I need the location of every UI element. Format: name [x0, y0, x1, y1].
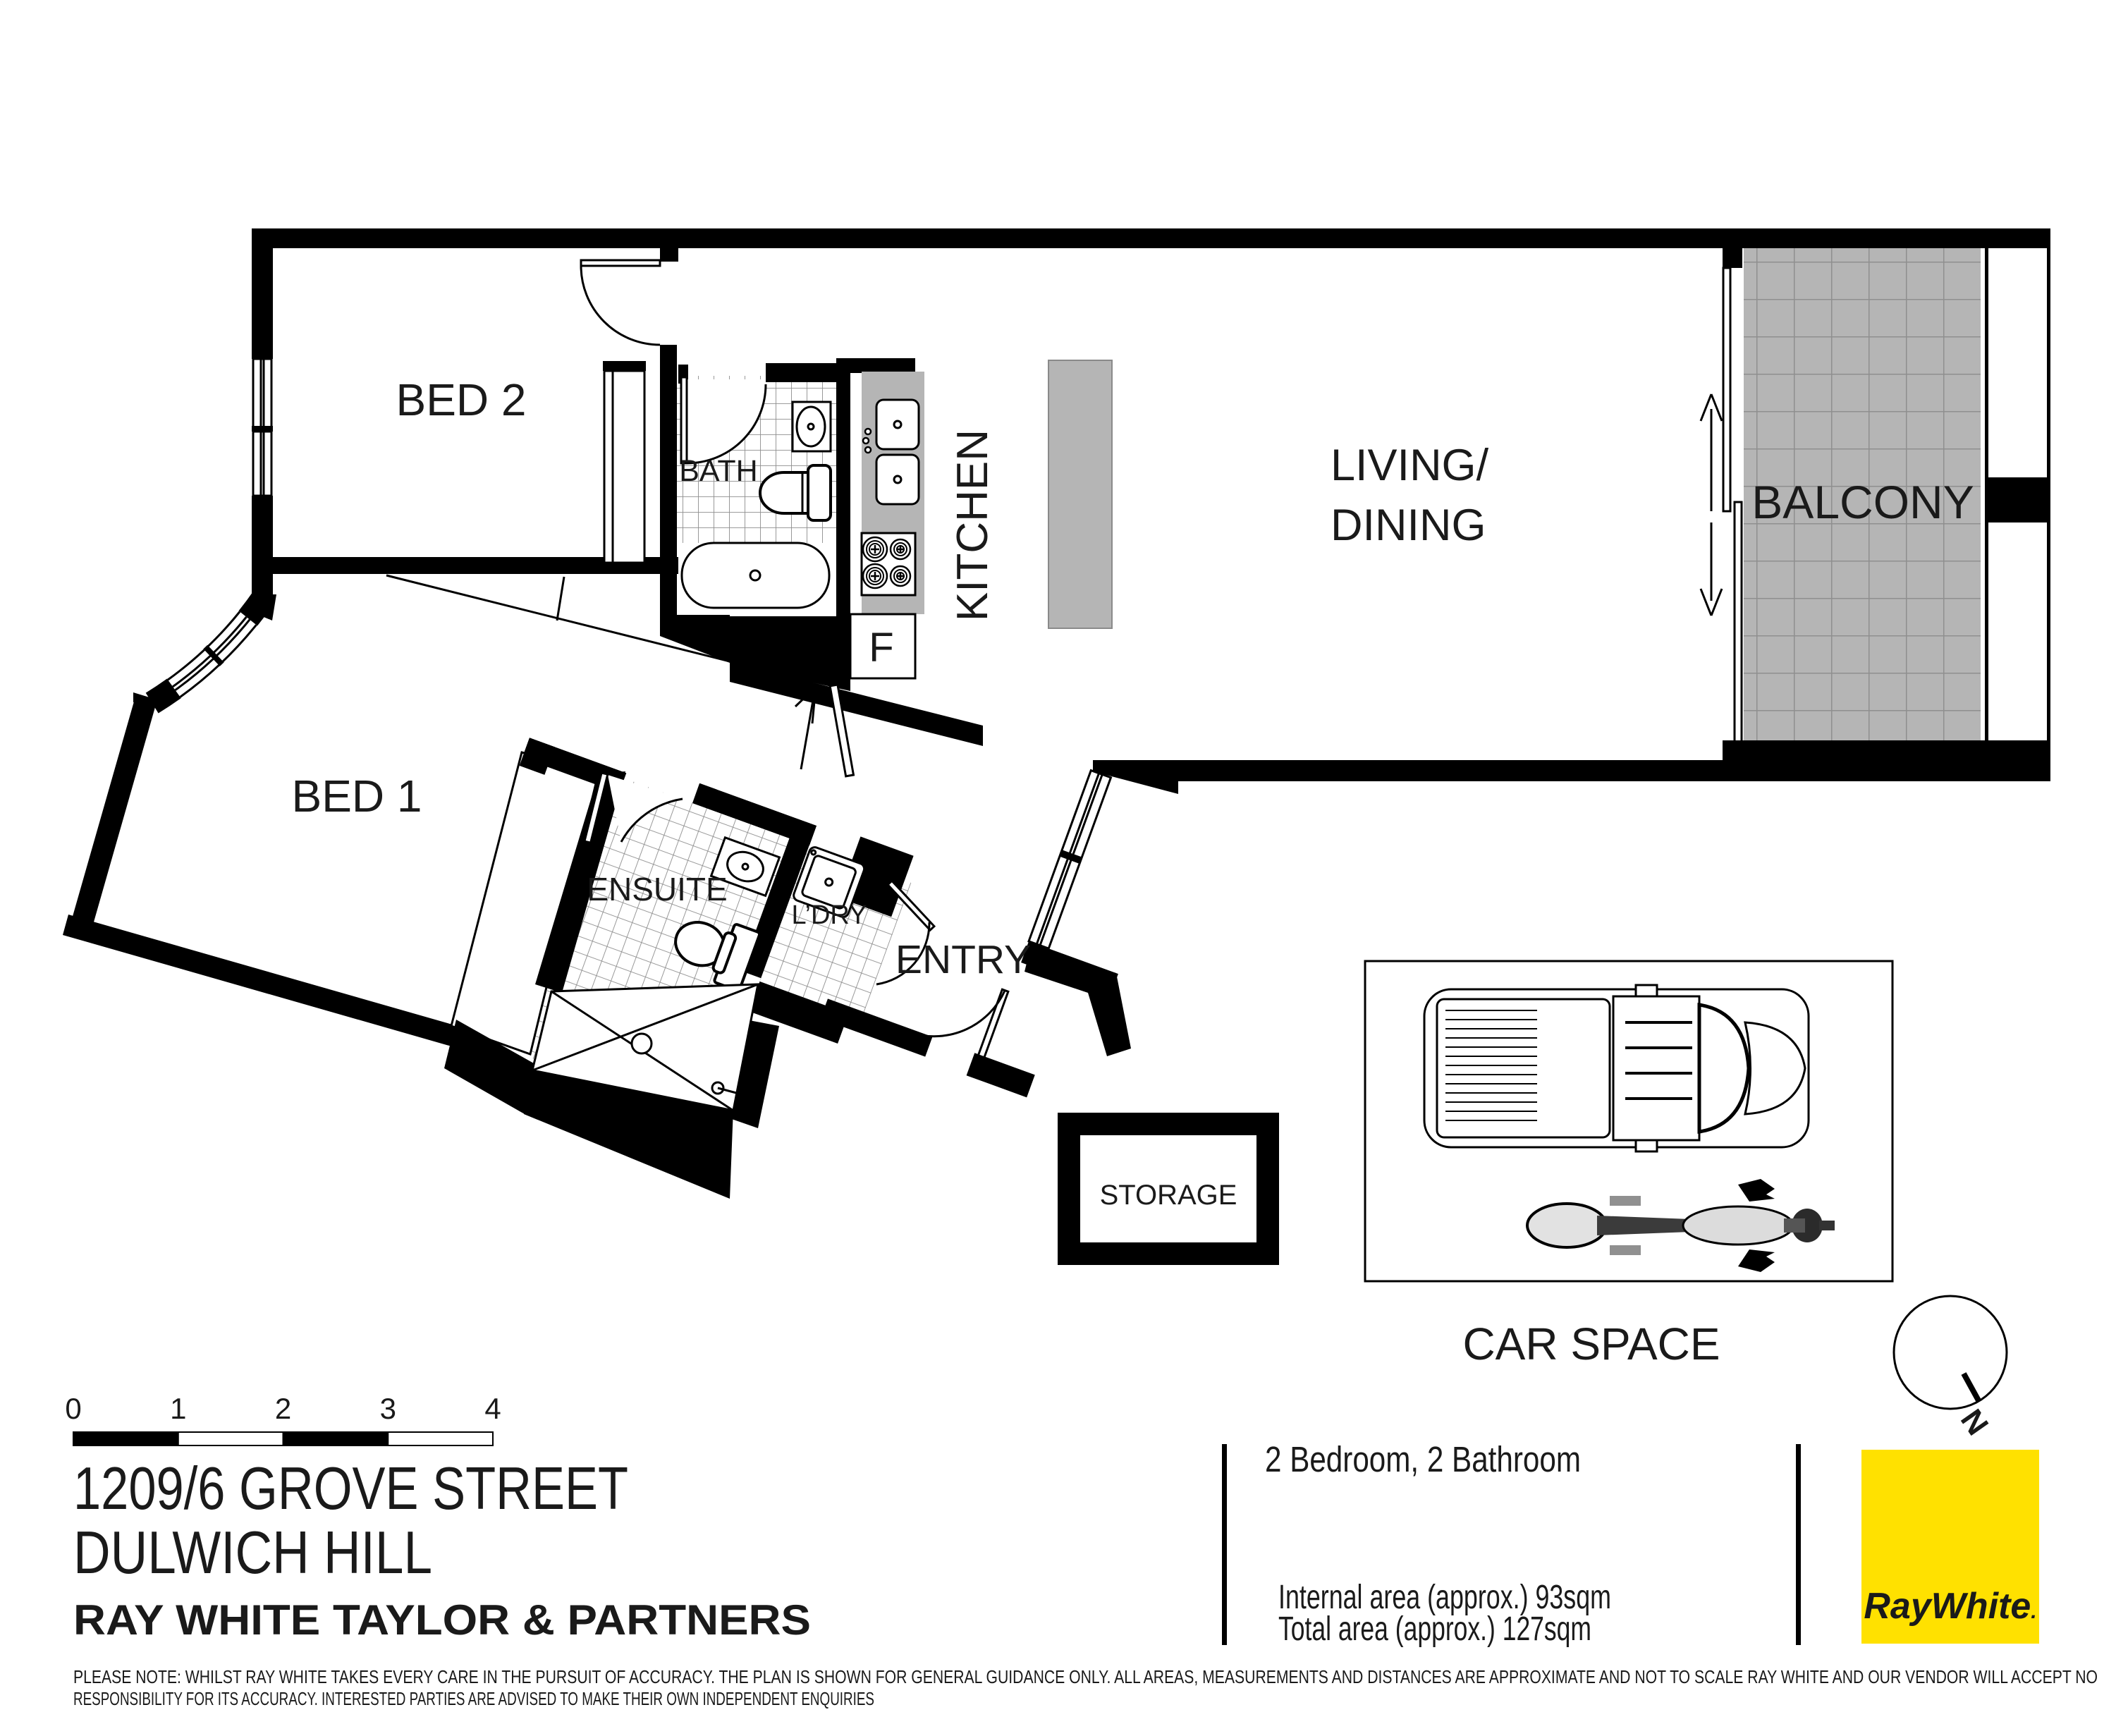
svg-text:LIVING/: LIVING/ — [1331, 441, 1489, 490]
svg-text:CAR SPACE: CAR SPACE — [1462, 1319, 1720, 1369]
svg-text:0: 0 — [65, 1392, 81, 1425]
svg-text:3: 3 — [380, 1392, 396, 1425]
svg-text:DULWICH HILL: DULWICH HILL — [73, 1520, 432, 1587]
svg-text:STORAGE: STORAGE — [1100, 1180, 1237, 1211]
svg-text:L’DRY: L’DRY — [791, 900, 867, 930]
svg-text:2: 2 — [275, 1392, 291, 1425]
svg-text:BED 1: BED 1 — [292, 771, 422, 821]
svg-text:BALCONY: BALCONY — [1751, 476, 1974, 528]
svg-text:ENSUITE: ENSUITE — [587, 871, 727, 907]
svg-text:2 Bedroom, 2 Bathroom: 2 Bedroom, 2 Bathroom — [1265, 1439, 1581, 1479]
svg-text:BATH: BATH — [679, 454, 758, 488]
svg-text:Total area (approx.) 127sqm: Total area (approx.) 127sqm — [1278, 1610, 1591, 1648]
svg-text:DINING: DINING — [1331, 501, 1486, 550]
svg-text:RayWhite.: RayWhite. — [1864, 1586, 2036, 1627]
svg-text:KITCHEN: KITCHEN — [948, 429, 997, 621]
svg-text:RAY WHITE TAYLOR & PARTNERS: RAY WHITE TAYLOR & PARTNERS — [73, 1596, 811, 1644]
svg-text:BED 2: BED 2 — [396, 374, 527, 425]
svg-text:1: 1 — [170, 1392, 186, 1425]
svg-text:F: F — [869, 625, 893, 671]
svg-text:ENTRY: ENTRY — [895, 937, 1031, 982]
svg-text:4: 4 — [484, 1392, 501, 1425]
svg-text:PLEASE NOTE: WHILST RAY WHITE: PLEASE NOTE: WHILST RAY WHITE TAKES EVER… — [73, 1666, 2098, 1687]
svg-text:RESPONSIBILITY FOR ITS ACCURAC: RESPONSIBILITY FOR ITS ACCURACY. INTERES… — [73, 1688, 874, 1709]
svg-text:1209/6 GROVE STREET: 1209/6 GROVE STREET — [73, 1455, 628, 1522]
